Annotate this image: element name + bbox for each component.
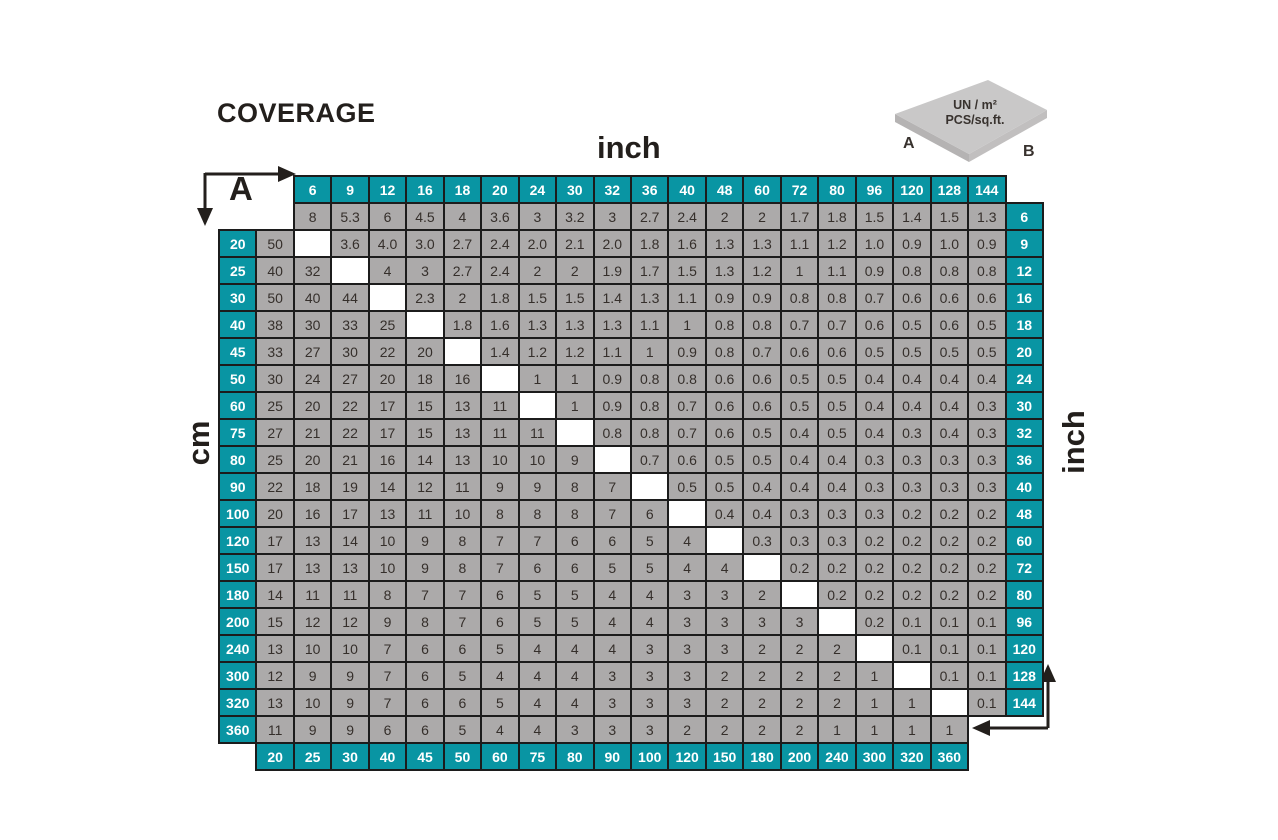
diagonal-blank-cell xyxy=(294,230,331,257)
value-cell-r17-c5: 5 xyxy=(444,662,481,689)
value-cell-r17-c1: 9 xyxy=(294,662,331,689)
value-cell-r10-c11: 0.5 xyxy=(668,473,705,500)
value-cell-r15-c12: 3 xyxy=(706,608,743,635)
value-cell-r15-c8: 5 xyxy=(556,608,593,635)
value-cell-r6-c1: 24 xyxy=(294,365,331,392)
value-cell-r11-c5: 10 xyxy=(444,500,481,527)
value-cell-r16-c1: 10 xyxy=(294,635,331,662)
value-cell-r10-c5: 11 xyxy=(444,473,481,500)
value-cell-r8-c15: 0.5 xyxy=(818,419,855,446)
value-cell-r11-c6: 8 xyxy=(481,500,518,527)
row-header-cm-320: 320 xyxy=(219,689,256,716)
value-cell-r15-c6: 6 xyxy=(481,608,518,635)
row-header-cm-90: 90 xyxy=(219,473,256,500)
value-cell-r5-c9: 1.1 xyxy=(594,338,631,365)
value-cell-r6-c9: 0.9 xyxy=(594,365,631,392)
value-cell-r12-c2: 14 xyxy=(331,527,368,554)
value-cell-r16-c17: 0.1 xyxy=(893,635,930,662)
bottom-header-cm-120: 120 xyxy=(668,743,705,770)
value-cell-r13-c15: 0.2 xyxy=(818,554,855,581)
value-cell-r13-c7: 6 xyxy=(519,554,556,581)
row-header-inch-24: 24 xyxy=(1006,365,1043,392)
value-cell-r18-c16: 1 xyxy=(856,689,893,716)
value-cell-r13-c5: 8 xyxy=(444,554,481,581)
value-cell-r7-c16: 0.4 xyxy=(856,392,893,419)
value-cell-r12-c19: 0.2 xyxy=(968,527,1005,554)
value-cell-r13-c0: 17 xyxy=(256,554,293,581)
value-cell-r2-c16: 0.9 xyxy=(856,257,893,284)
value-cell-r19-c2: 9 xyxy=(331,716,368,743)
value-cell-r14-c18: 0.2 xyxy=(931,581,968,608)
value-cell-r19-c3: 6 xyxy=(369,716,406,743)
value-cell-r8-c1: 21 xyxy=(294,419,331,446)
value-cell-r18-c7: 4 xyxy=(519,689,556,716)
col-header-inch-80: 80 xyxy=(818,176,855,203)
value-cell-r17-c12: 2 xyxy=(706,662,743,689)
value-cell-r16-c4: 6 xyxy=(406,635,443,662)
value-cell-r19-c4: 6 xyxy=(406,716,443,743)
value-cell-r4-c19: 0.5 xyxy=(968,311,1005,338)
diagonal-blank-cell xyxy=(444,338,481,365)
value-cell-r11-c4: 11 xyxy=(406,500,443,527)
value-cell-r19-c14: 2 xyxy=(781,716,818,743)
diagonal-blank-cell xyxy=(818,608,855,635)
col-header-inch-120: 120 xyxy=(893,176,930,203)
row-header-inch-9: 9 xyxy=(1006,230,1043,257)
value-cell-r2-c19: 0.8 xyxy=(968,257,1005,284)
value-cell-r9-c12: 0.5 xyxy=(706,446,743,473)
value-cell-r18-c10: 3 xyxy=(631,689,668,716)
value-cell-r12-c15: 0.3 xyxy=(818,527,855,554)
col-header-inch-24: 24 xyxy=(519,176,556,203)
bottom-header-cm-20: 20 xyxy=(256,743,293,770)
b-zone-spacer xyxy=(1006,716,1043,743)
value-cell-r12-c10: 5 xyxy=(631,527,668,554)
value-cell-r14-c7: 5 xyxy=(519,581,556,608)
value-cell-r2-c12: 1.3 xyxy=(706,257,743,284)
value-cell-r3-c17: 0.6 xyxy=(893,284,930,311)
value-cell-r3-c18: 0.6 xyxy=(931,284,968,311)
row-header-cm-300: 300 xyxy=(219,662,256,689)
bottom-left-spacer xyxy=(219,743,256,770)
value-cell-r10-c14: 0.4 xyxy=(781,473,818,500)
col-header-inch-6: 6 xyxy=(294,176,331,203)
value-cell-r9-c14: 0.4 xyxy=(781,446,818,473)
value-cell-r8-c3: 17 xyxy=(369,419,406,446)
value-cell-r12-c5: 8 xyxy=(444,527,481,554)
bottom-header-cm-240: 240 xyxy=(818,743,855,770)
value-cell-r15-c1: 12 xyxy=(294,608,331,635)
diagonal-blank-cell xyxy=(668,500,705,527)
value-cell-r1-c16: 1.0 xyxy=(856,230,893,257)
value-cell-r15-c13: 3 xyxy=(743,608,780,635)
row-header-inch-80: 80 xyxy=(1006,581,1043,608)
value-cell-r10-c9: 7 xyxy=(594,473,631,500)
value-cell-r10-c19: 0.3 xyxy=(968,473,1005,500)
value-cell-r7-c4: 15 xyxy=(406,392,443,419)
value-cell-r19-c15: 1 xyxy=(818,716,855,743)
value-cell-r12-c13: 0.3 xyxy=(743,527,780,554)
value-cell-r7-c3: 17 xyxy=(369,392,406,419)
left-spacer xyxy=(219,203,256,230)
value-cell-r12-c18: 0.2 xyxy=(931,527,968,554)
value-cell-r13-c11: 4 xyxy=(668,554,705,581)
value-cell-r6-c17: 0.4 xyxy=(893,365,930,392)
value-cell-r1-c2: 3.6 xyxy=(331,230,368,257)
value-cell-r17-c0: 12 xyxy=(256,662,293,689)
value-cell-r7-c9: 0.9 xyxy=(594,392,631,419)
value-cell-r16-c9: 4 xyxy=(594,635,631,662)
value-cell-r7-c6: 11 xyxy=(481,392,518,419)
diagonal-blank-cell xyxy=(743,554,780,581)
diagonal-blank-cell xyxy=(331,257,368,284)
value-cell-r12-c1: 13 xyxy=(294,527,331,554)
value-cell-r11-c7: 8 xyxy=(519,500,556,527)
value-cell-r17-c2: 9 xyxy=(331,662,368,689)
value-cell-r13-c12: 4 xyxy=(706,554,743,581)
value-cell-r2-c10: 1.7 xyxy=(631,257,668,284)
value-cell-r7-c11: 0.7 xyxy=(668,392,705,419)
value-cell-r4-c17: 0.5 xyxy=(893,311,930,338)
row-header-inch-96: 96 xyxy=(1006,608,1043,635)
value-cell-r15-c14: 3 xyxy=(781,608,818,635)
row-header-cm-150: 150 xyxy=(219,554,256,581)
diagonal-blank-cell xyxy=(781,581,818,608)
value-cell-r12-c11: 4 xyxy=(668,527,705,554)
value-cell-r7-c12: 0.6 xyxy=(706,392,743,419)
value-cell-r1-c6: 2.4 xyxy=(481,230,518,257)
value-cell-r11-c16: 0.3 xyxy=(856,500,893,527)
value-cell-r16-c11: 3 xyxy=(668,635,705,662)
value-cell-r14-c0: 14 xyxy=(256,581,293,608)
value-cell-r11-c2: 17 xyxy=(331,500,368,527)
value-cell-r16-c14: 2 xyxy=(781,635,818,662)
row-header-inch-144: 144 xyxy=(1006,689,1043,716)
value-cell-r19-c17: 1 xyxy=(893,716,930,743)
value-cell-r4-c11: 1 xyxy=(668,311,705,338)
value-cell-r7-c17: 0.4 xyxy=(893,392,930,419)
value-cell-r5-c15: 0.6 xyxy=(818,338,855,365)
value-cell-r9-c8: 9 xyxy=(556,446,593,473)
value-cell-r5-c18: 0.5 xyxy=(931,338,968,365)
value-cell-r2-c9: 1.9 xyxy=(594,257,631,284)
value-cell-r0-c14: 1.7 xyxy=(781,203,818,230)
value-cell-r18-c15: 2 xyxy=(818,689,855,716)
bottom-header-cm-180: 180 xyxy=(743,743,780,770)
value-cell-r4-c13: 0.8 xyxy=(743,311,780,338)
value-cell-r15-c4: 8 xyxy=(406,608,443,635)
value-cell-r2-c6: 2.4 xyxy=(481,257,518,284)
diagonal-blank-cell xyxy=(893,662,930,689)
value-cell-r1-c14: 1.1 xyxy=(781,230,818,257)
value-cell-r7-c2: 22 xyxy=(331,392,368,419)
value-cell-r1-c3: 4.0 xyxy=(369,230,406,257)
value-cell-r6-c15: 0.5 xyxy=(818,365,855,392)
value-cell-r10-c4: 12 xyxy=(406,473,443,500)
value-cell-r10-c0: 22 xyxy=(256,473,293,500)
value-cell-r18-c19: 0.1 xyxy=(968,689,1005,716)
bottom-header-cm-25: 25 xyxy=(294,743,331,770)
value-cell-r6-c4: 18 xyxy=(406,365,443,392)
value-cell-r17-c4: 6 xyxy=(406,662,443,689)
row-header-cm-120: 120 xyxy=(219,527,256,554)
bottom-header-cm-360: 360 xyxy=(931,743,968,770)
value-cell-r7-c1: 20 xyxy=(294,392,331,419)
row-header-inch-30: 30 xyxy=(1006,392,1043,419)
value-cell-r18-c0: 13 xyxy=(256,689,293,716)
value-cell-r8-c18: 0.4 xyxy=(931,419,968,446)
row-header-inch-40: 40 xyxy=(1006,473,1043,500)
row-header-inch-20: 20 xyxy=(1006,338,1043,365)
value-cell-r14-c4: 7 xyxy=(406,581,443,608)
value-cell-r17-c3: 7 xyxy=(369,662,406,689)
value-cell-r17-c15: 2 xyxy=(818,662,855,689)
tile-edge-b-label: B xyxy=(1023,143,1035,160)
diagonal-blank-cell xyxy=(931,689,968,716)
value-cell-r0-c4: 4.5 xyxy=(406,203,443,230)
diagonal-blank-cell xyxy=(519,392,556,419)
col-header-inch-16: 16 xyxy=(406,176,443,203)
value-cell-r5-c16: 0.5 xyxy=(856,338,893,365)
value-cell-r2-c18: 0.8 xyxy=(931,257,968,284)
value-cell-r2-c17: 0.8 xyxy=(893,257,930,284)
value-cell-r14-c9: 4 xyxy=(594,581,631,608)
col-header-inch-18: 18 xyxy=(444,176,481,203)
value-cell-r5-c2: 30 xyxy=(331,338,368,365)
diagonal-blank-cell xyxy=(594,446,631,473)
value-cell-r3-c14: 0.8 xyxy=(781,284,818,311)
value-cell-r2-c4: 3 xyxy=(406,257,443,284)
row-header-cm-20: 20 xyxy=(219,230,256,257)
value-cell-r16-c6: 5 xyxy=(481,635,518,662)
value-cell-r6-c7: 1 xyxy=(519,365,556,392)
value-cell-r8-c7: 11 xyxy=(519,419,556,446)
row-header-cm-60: 60 xyxy=(219,392,256,419)
value-cell-r17-c9: 3 xyxy=(594,662,631,689)
absent-cell xyxy=(968,716,1005,743)
coverage-page: COVERAGE inch cm inch cm A B UN / m² PCS… xyxy=(0,0,1278,840)
value-cell-r6-c14: 0.5 xyxy=(781,365,818,392)
value-cell-r7-c0: 25 xyxy=(256,392,293,419)
col-header-inch-48: 48 xyxy=(706,176,743,203)
value-cell-r5-c6: 1.4 xyxy=(481,338,518,365)
value-cell-r19-c18: 1 xyxy=(931,716,968,743)
value-cell-r5-c0: 33 xyxy=(256,338,293,365)
value-cell-r9-c1: 20 xyxy=(294,446,331,473)
value-cell-r0-c3: 6 xyxy=(369,203,406,230)
value-cell-r6-c10: 0.8 xyxy=(631,365,668,392)
col-header-inch-9: 9 xyxy=(331,176,368,203)
bottom-header-cm-45: 45 xyxy=(406,743,443,770)
value-cell-r15-c5: 7 xyxy=(444,608,481,635)
value-cell-r1-c18: 1.0 xyxy=(931,230,968,257)
value-cell-r14-c2: 11 xyxy=(331,581,368,608)
value-cell-r8-c2: 22 xyxy=(331,419,368,446)
value-cell-r0-c19: 1.3 xyxy=(968,203,1005,230)
value-cell-r1-c11: 1.6 xyxy=(668,230,705,257)
value-cell-r15-c16: 0.2 xyxy=(856,608,893,635)
row-header-inch-72: 72 xyxy=(1006,554,1043,581)
value-cell-r8-c9: 0.8 xyxy=(594,419,631,446)
value-cell-r3-c9: 1.4 xyxy=(594,284,631,311)
value-cell-r13-c8: 6 xyxy=(556,554,593,581)
row-header-inch-128: 128 xyxy=(1006,662,1043,689)
value-cell-r10-c16: 0.3 xyxy=(856,473,893,500)
axis-label-right-inch: inch xyxy=(1056,410,1088,474)
col-header-inch-144: 144 xyxy=(968,176,1005,203)
value-cell-r17-c7: 4 xyxy=(519,662,556,689)
value-cell-r2-c8: 2 xyxy=(556,257,593,284)
value-cell-r11-c19: 0.2 xyxy=(968,500,1005,527)
b-zone-spacer xyxy=(1006,743,1043,770)
value-cell-r3-c1: 40 xyxy=(294,284,331,311)
value-cell-r2-c5: 2.7 xyxy=(444,257,481,284)
top-right-spacer xyxy=(1006,176,1043,203)
value-cell-r2-c11: 1.5 xyxy=(668,257,705,284)
value-cell-r18-c3: 7 xyxy=(369,689,406,716)
value-cell-r16-c15: 2 xyxy=(818,635,855,662)
value-cell-r1-c8: 2.1 xyxy=(556,230,593,257)
value-cell-r4-c5: 1.8 xyxy=(444,311,481,338)
value-cell-r16-c12: 3 xyxy=(706,635,743,662)
value-cell-r17-c6: 4 xyxy=(481,662,518,689)
value-cell-r8-c19: 0.3 xyxy=(968,419,1005,446)
bottom-header-cm-320: 320 xyxy=(893,743,930,770)
value-cell-r0-c8: 3.2 xyxy=(556,203,593,230)
value-cell-r19-c6: 4 xyxy=(481,716,518,743)
bottom-header-cm-40: 40 xyxy=(369,743,406,770)
value-cell-r17-c18: 0.1 xyxy=(931,662,968,689)
value-cell-r3-c12: 0.9 xyxy=(706,284,743,311)
value-cell-r1-c12: 1.3 xyxy=(706,230,743,257)
value-cell-r17-c19: 0.1 xyxy=(968,662,1005,689)
value-cell-r14-c16: 0.2 xyxy=(856,581,893,608)
value-cell-r10-c7: 9 xyxy=(519,473,556,500)
value-cell-r12-c4: 9 xyxy=(406,527,443,554)
axis-label-top-inch: inch xyxy=(597,130,661,166)
value-cell-r18-c12: 2 xyxy=(706,689,743,716)
value-cell-r19-c5: 5 xyxy=(444,716,481,743)
diagonal-blank-cell xyxy=(369,284,406,311)
diagonal-blank-cell xyxy=(406,311,443,338)
value-cell-r13-c16: 0.2 xyxy=(856,554,893,581)
value-cell-r10-c6: 9 xyxy=(481,473,518,500)
row-header-inch-48: 48 xyxy=(1006,500,1043,527)
value-cell-r10-c13: 0.4 xyxy=(743,473,780,500)
value-cell-r8-c17: 0.3 xyxy=(893,419,930,446)
value-cell-r9-c0: 25 xyxy=(256,446,293,473)
value-cell-r1-c4: 3.0 xyxy=(406,230,443,257)
value-cell-r9-c19: 0.3 xyxy=(968,446,1005,473)
value-cell-r12-c3: 10 xyxy=(369,527,406,554)
value-cell-r4-c15: 0.7 xyxy=(818,311,855,338)
value-cell-r5-c12: 0.8 xyxy=(706,338,743,365)
row-header-cm-40: 40 xyxy=(219,311,256,338)
value-cell-r10-c12: 0.5 xyxy=(706,473,743,500)
bottom-header-cm-90: 90 xyxy=(594,743,631,770)
value-cell-r11-c13: 0.4 xyxy=(743,500,780,527)
value-cell-r1-c0: 50 xyxy=(256,230,293,257)
value-cell-r17-c11: 3 xyxy=(668,662,705,689)
value-cell-r1-c19: 0.9 xyxy=(968,230,1005,257)
value-cell-r3-c15: 0.8 xyxy=(818,284,855,311)
value-cell-r13-c19: 0.2 xyxy=(968,554,1005,581)
diagonal-blank-cell xyxy=(706,527,743,554)
value-cell-r16-c13: 2 xyxy=(743,635,780,662)
value-cell-r12-c8: 6 xyxy=(556,527,593,554)
value-cell-r9-c15: 0.4 xyxy=(818,446,855,473)
value-cell-r13-c3: 10 xyxy=(369,554,406,581)
value-cell-r10-c17: 0.3 xyxy=(893,473,930,500)
value-cell-r9-c5: 13 xyxy=(444,446,481,473)
value-cell-r14-c17: 0.2 xyxy=(893,581,930,608)
value-cell-r0-c18: 1.5 xyxy=(931,203,968,230)
value-cell-r2-c15: 1.1 xyxy=(818,257,855,284)
value-cell-r7-c19: 0.3 xyxy=(968,392,1005,419)
value-cell-r11-c18: 0.2 xyxy=(931,500,968,527)
value-cell-r5-c4: 20 xyxy=(406,338,443,365)
value-cell-r15-c17: 0.1 xyxy=(893,608,930,635)
page-title: COVERAGE xyxy=(217,98,376,129)
value-cell-r4-c14: 0.7 xyxy=(781,311,818,338)
row-header-inch-60: 60 xyxy=(1006,527,1043,554)
value-cell-r0-c16: 1.5 xyxy=(856,203,893,230)
value-cell-r18-c17: 1 xyxy=(893,689,930,716)
value-cell-r16-c7: 4 xyxy=(519,635,556,662)
value-cell-r1-c10: 1.8 xyxy=(631,230,668,257)
diagonal-blank-cell xyxy=(556,419,593,446)
bottom-header-cm-80: 80 xyxy=(556,743,593,770)
axis-label-left-cm: cm xyxy=(181,418,213,468)
value-cell-r4-c9: 1.3 xyxy=(594,311,631,338)
value-cell-r8-c0: 27 xyxy=(256,419,293,446)
value-cell-r18-c8: 4 xyxy=(556,689,593,716)
col-header-inch-128: 128 xyxy=(931,176,968,203)
bottom-header-cm-150: 150 xyxy=(706,743,743,770)
value-cell-r14-c6: 6 xyxy=(481,581,518,608)
value-cell-r19-c10: 3 xyxy=(631,716,668,743)
tile-legend-line2: PCS/sq.ft. xyxy=(945,113,1004,127)
value-cell-r9-c4: 14 xyxy=(406,446,443,473)
value-cell-r1-c5: 2.7 xyxy=(444,230,481,257)
value-cell-r8-c13: 0.5 xyxy=(743,419,780,446)
value-cell-r1-c17: 0.9 xyxy=(893,230,930,257)
value-cell-r8-c5: 13 xyxy=(444,419,481,446)
value-cell-r6-c13: 0.6 xyxy=(743,365,780,392)
value-cell-r8-c16: 0.4 xyxy=(856,419,893,446)
row-header-cm-80: 80 xyxy=(219,446,256,473)
value-cell-r11-c15: 0.3 xyxy=(818,500,855,527)
value-cell-r4-c8: 1.3 xyxy=(556,311,593,338)
value-cell-r5-c8: 1.2 xyxy=(556,338,593,365)
value-cell-r9-c6: 10 xyxy=(481,446,518,473)
value-cell-r4-c3: 25 xyxy=(369,311,406,338)
value-cell-r11-c1: 16 xyxy=(294,500,331,527)
col-header-inch-30: 30 xyxy=(556,176,593,203)
value-cell-r6-c12: 0.6 xyxy=(706,365,743,392)
value-cell-r2-c7: 2 xyxy=(519,257,556,284)
row-header-cm-360: 360 xyxy=(219,716,256,743)
value-cell-r9-c11: 0.6 xyxy=(668,446,705,473)
value-cell-r3-c7: 1.5 xyxy=(519,284,556,311)
row-header-cm-50: 50 xyxy=(219,365,256,392)
value-cell-r15-c0: 15 xyxy=(256,608,293,635)
tile-legend-line1: UN / m² xyxy=(953,98,997,112)
value-cell-r14-c12: 3 xyxy=(706,581,743,608)
value-cell-r18-c11: 3 xyxy=(668,689,705,716)
diagonal-blank-cell xyxy=(631,473,668,500)
value-cell-r8-c10: 0.8 xyxy=(631,419,668,446)
